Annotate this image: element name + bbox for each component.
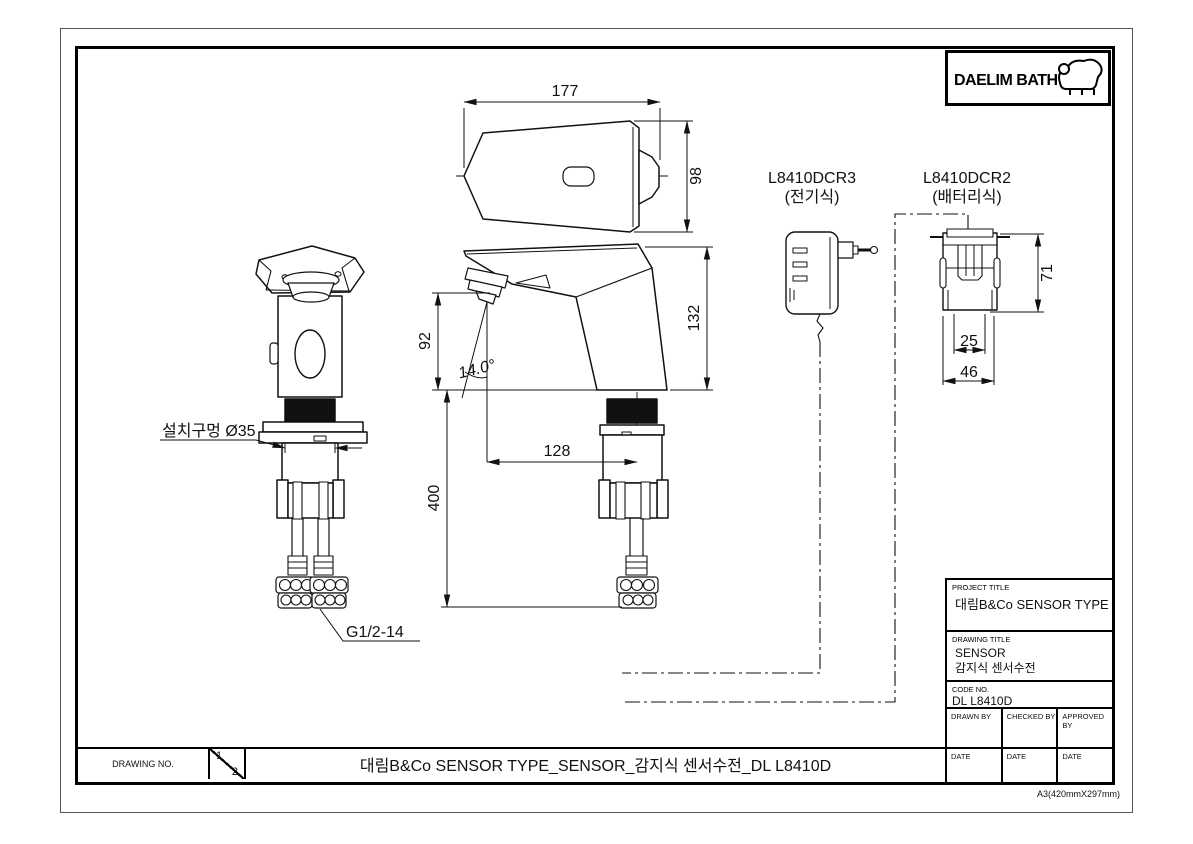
checked-by-label: CHECKED BY xyxy=(1003,709,1059,747)
date-label-1: DATE xyxy=(947,749,1003,782)
dim-inlet-length: 400 xyxy=(426,485,443,512)
project-title-value: 대림B&Co SENSOR TYPE xyxy=(947,592,1112,613)
dim-spout-height: 92 xyxy=(417,332,434,350)
title-block: PROJECT TITLE 대림B&Co SENSOR TYPE DRAWING… xyxy=(945,578,1112,782)
label-thread: G1/2-14 xyxy=(346,624,404,641)
dim-top-width: 177 xyxy=(552,83,579,100)
drawing-title-bar: 대림B&Co SENSOR TYPE_SENSOR_감지식 센서수전_DL L8… xyxy=(246,749,945,779)
project-title-label: PROJECT TITLE xyxy=(947,580,1112,592)
label-mount-hole: 설치구멍 Ø35 xyxy=(162,422,256,440)
code-no-row: CODE NO. DL L8410D xyxy=(947,682,1112,709)
dim-battery-inner-width: 25 xyxy=(960,333,978,350)
signatures-row: DRAWN BY CHECKED BY APPROVED BY xyxy=(947,709,1112,749)
label-adapter-model: L8410DCR3 xyxy=(768,170,856,187)
code-no-label: CODE NO. xyxy=(947,682,1112,694)
drawing-title-label: DRAWING TITLE xyxy=(947,632,1112,644)
brand-name: DAELIM BATH xyxy=(954,72,1058,89)
code-no-value: DL L8410D xyxy=(947,694,1112,709)
side-view xyxy=(464,244,668,608)
drawing-title-text: 대림B&Co SENSOR TYPE_SENSOR_감지식 센서수전_DL L8… xyxy=(360,752,831,776)
date-label-3: DATE xyxy=(1058,749,1112,782)
sheet-current: 1 xyxy=(216,750,222,762)
bottom-bar: DRAWING NO. 1 2 대림B&Co SENSOR TYPE_SENSO… xyxy=(78,747,945,779)
drawn-by-label: DRAWN BY xyxy=(947,709,1003,747)
dim-top-depth: 98 xyxy=(688,167,705,185)
date-label-2: DATE xyxy=(1003,749,1059,782)
paper-size-note: A3(420mmX297mm) xyxy=(900,789,1120,799)
front-view xyxy=(256,246,367,608)
adapter-drawing xyxy=(786,232,878,314)
approved-by-label: APPROVED BY xyxy=(1058,709,1112,747)
drawing-title-line1: SENSOR xyxy=(947,644,1112,661)
label-battery-model: L8410DCR2 xyxy=(923,170,1011,187)
dim-total-height: 132 xyxy=(686,305,703,332)
dates-row: DATE DATE DATE xyxy=(947,749,1112,782)
label-battery-type: (배터리식) xyxy=(932,188,1002,206)
brand-logo: DAELIM BATH xyxy=(948,53,1108,103)
polar-bear-icon xyxy=(1059,60,1102,95)
dim-battery-width: 46 xyxy=(960,364,978,381)
drawing-no-label: DRAWING NO. xyxy=(112,759,174,769)
sheet-number-cell: 1 2 xyxy=(210,749,246,779)
drawing-no-cell: DRAWING NO. xyxy=(78,749,210,779)
battery-drawing xyxy=(930,229,1010,310)
top-view xyxy=(456,121,668,232)
dim-battery-height: 71 xyxy=(1039,264,1056,282)
drawing-title-line2: 감지식 센서수전 xyxy=(947,661,1112,676)
label-adapter-type: (전기식) xyxy=(785,188,840,206)
sheet-total: 2 xyxy=(232,766,238,778)
project-title-row: PROJECT TITLE 대림B&Co SENSOR TYPE xyxy=(947,580,1112,632)
dim-reach: 128 xyxy=(544,443,571,460)
logo-box: DAELIM BATH xyxy=(945,50,1111,106)
dim-angle: 14.0° xyxy=(457,357,498,383)
drawing-title-row: DRAWING TITLE SENSOR 감지식 센서수전 xyxy=(947,632,1112,682)
